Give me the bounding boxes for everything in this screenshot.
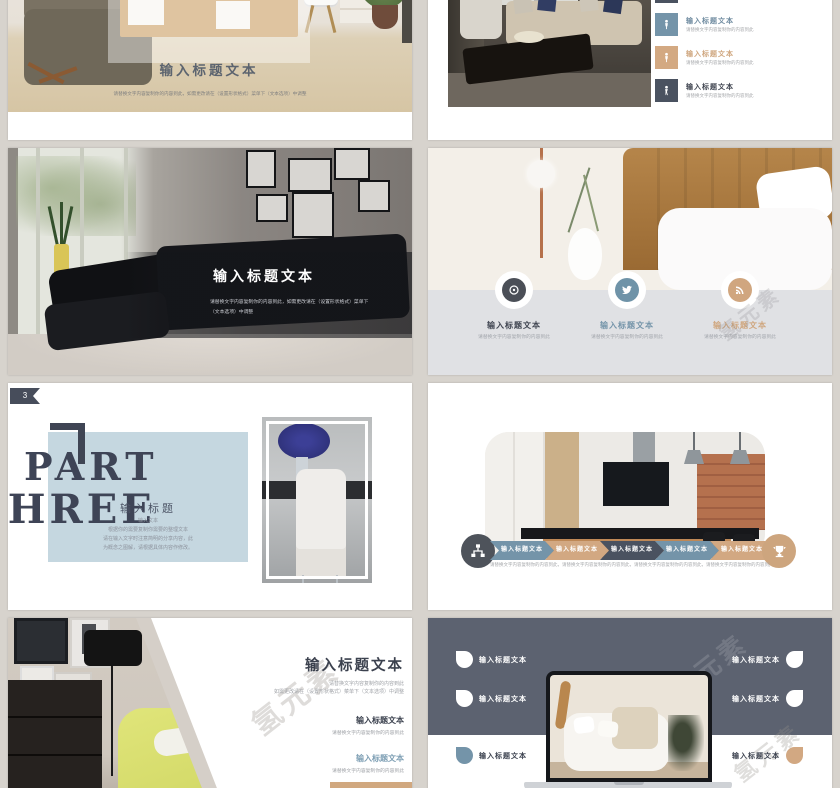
living-room-photo: 输入标题文本 请替换文字内容复制你的内容到此，如需更改请在（设置形状格式）菜单下… — [8, 0, 412, 112]
teardrop-marker-icon — [456, 690, 473, 707]
slide-thumbnail-2-right[interactable]: 输入标题文本 输入标题文本 输入标题文本 请替换文字内容复制你的内容到此 请替换… — [428, 148, 832, 375]
photo-pendant-stem — [693, 432, 695, 450]
photo-wood-panel — [545, 432, 579, 540]
teardrop-marker-icon — [786, 747, 803, 764]
photo-wall-frame — [358, 180, 390, 212]
photo-wall-frame — [256, 194, 288, 222]
item-label: 输入标题文本 — [732, 655, 780, 665]
template-preview-page: 输入标题文本 请替换文字内容复制你的内容到此，如需更改请在（设置形状格式）菜单下… — [0, 0, 840, 788]
part-description: 输入文本 根据你的需要复制你需要的整理文本 请在输入文字时注意简明的分享内容，此… — [43, 517, 253, 553]
item-body: 请替换文字内容复制你的内容到此 — [686, 93, 828, 99]
item-title: 输入标题文本 — [567, 320, 687, 331]
icon-ring — [721, 271, 759, 309]
slide-thumbnail-4-left[interactable]: 氢元素 输入标题文本 请替换文字内容复制你的内容到此 如需更改请在（设置形状格式… — [8, 618, 412, 788]
item-label: 输入标题文本 — [479, 655, 527, 665]
photo-pillow — [513, 0, 533, 14]
photo-wall-frame — [292, 192, 334, 238]
slide-thumbnail-3-left[interactable]: 3 PART THREE 输入标题 输入文本 根据你的需要复制你需要的整理文本 … — [8, 383, 412, 610]
slide-thumbnail-1-left[interactable]: 输入标题文本 请替换文字内容复制你的内容到此，如需更改请在（设置形状格式）菜单下… — [8, 0, 412, 140]
photo-branch — [568, 167, 591, 232]
photo-pendant-lamp — [684, 450, 704, 464]
slide-thumbnail-1-right[interactable]: 输入标题文本 请替换文字内容复制你的内容到此 输入标题文本 请替换文字内容复制你… — [428, 0, 832, 140]
list-item: 输入标题文本 — [456, 651, 527, 668]
target-icon — [502, 278, 526, 302]
item-body: 请替换文字内容复制你的内容到此 — [567, 333, 687, 340]
item-label: 输入标题文本 — [732, 751, 780, 761]
photo-brick-wall — [697, 454, 765, 530]
part-subtitle: 输入标题 — [78, 500, 218, 516]
photo-dresser — [8, 680, 102, 788]
teardrop-marker-icon — [786, 651, 803, 668]
list-item: 输入标题文本 — [456, 747, 527, 764]
slide-body-line: 请替换文字内容复制你的内容到此，如需更改请在（设置形状格式）菜单下 — [210, 298, 408, 305]
person-icon — [655, 46, 678, 69]
process-step: 输入标题文本 — [545, 541, 609, 560]
photo-vase — [568, 228, 602, 280]
slide-body-line: （文本选项）中调整 — [210, 308, 408, 315]
icon-ring — [608, 271, 646, 309]
process-caption: 请替换文字内容复制你的内容到此，请替换文字内容复制你的内容到此，请替换文字内容复… — [490, 562, 770, 568]
dark-overlay-band — [126, 252, 412, 338]
photo-pillow — [597, 720, 619, 738]
photo-lamp-shade — [84, 630, 142, 666]
item-body: 请替换文字内容复制你的内容到此 — [686, 27, 828, 33]
photo-range-hood — [633, 432, 655, 464]
twitter-bird-icon — [615, 278, 639, 302]
photo-pillow — [573, 716, 595, 735]
lounge-photo — [448, 0, 651, 107]
photo-armchair — [460, 0, 502, 39]
teardrop-marker-icon — [786, 690, 803, 707]
part-description-line: 根据你的需要复制你需要的整理文本 — [43, 526, 253, 535]
photo-pillow — [537, 0, 557, 12]
photo-window-mullion — [36, 148, 40, 338]
person-icon — [655, 0, 678, 3]
slide-title: 输入标题文本 — [204, 654, 404, 675]
dining-room-photo — [262, 417, 372, 583]
photo-garden-view — [16, 156, 136, 236]
part-word: PART — [24, 445, 158, 489]
kitchen-photo — [485, 432, 765, 558]
photo-wall-frame — [288, 158, 332, 192]
item-title: 输入标题文本 — [686, 82, 828, 92]
item-body: 请替换文字内容复制你的内容到此 — [454, 333, 574, 340]
section-title: 输入标题文本 — [204, 753, 404, 764]
photo-blanket — [612, 707, 658, 749]
laptop-photo-sofa — [550, 675, 708, 778]
slide-caption: 请替换文字内容复制你的内容到此 如需更改请在（设置形状格式）菜单下（文本选项）中… — [154, 680, 404, 696]
photo-flowers — [514, 31, 544, 43]
slide-thumbnail-2-left[interactable]: 输入标题文本 请替换文字内容复制你的内容到此，如需更改请在（设置形状格式）菜单下… — [8, 148, 412, 375]
photo-chair-leg — [327, 5, 337, 33]
photo-dark-panel — [402, 0, 412, 43]
section-body: 请替换文字内容复制你的内容到此 — [204, 729, 404, 736]
photo-tv — [603, 462, 669, 506]
part-description-line: 输入文本 — [43, 517, 253, 526]
slide-thumbnail-3-right[interactable]: 输入标题文本 输入标题文本 输入标题文本 输入标题文本 输入标题文本 请替换文字… — [428, 383, 832, 610]
photo-pendant-lamp — [730, 450, 750, 464]
process-step: 输入标题文本 — [655, 541, 719, 560]
rss-icon — [728, 278, 752, 302]
item-title: 输入标题文本 — [686, 49, 828, 59]
slide-caption-line: 如需更改请在（设置形状格式）菜单下（文本选项）中调整 — [154, 688, 404, 696]
slide-caption-line: 请替换文字内容复制你的内容到此 — [154, 680, 404, 688]
icon-ring — [495, 271, 533, 309]
item-title: 输入标题文本 — [680, 320, 800, 331]
laptop-notch — [614, 782, 644, 785]
photo-wall-frame — [246, 150, 276, 188]
person-icon — [655, 13, 678, 36]
part-number-flag: 3 — [10, 388, 40, 404]
photo-pendant-stem — [739, 432, 741, 450]
photo-wall-frame — [334, 148, 370, 180]
item-body: 请替换文字内容复制你的内容到此 — [680, 333, 800, 340]
process-step: 输入标题文本 — [600, 541, 664, 560]
list-item: 输入标题文本 — [732, 651, 803, 668]
photo-lamp-pole — [111, 666, 113, 776]
photo-plant-pot — [372, 5, 398, 29]
laptop-screen — [546, 671, 712, 782]
photo-inner-frame — [266, 421, 368, 579]
teardrop-marker-icon — [456, 747, 473, 764]
item-title: 输入标题文本 — [454, 320, 574, 331]
bedroom-photo — [428, 148, 832, 290]
section-body: 请替换文字内容复制你的内容到此 — [204, 767, 404, 774]
part-description-line: 为概念之图解，请根据具体内容作修改。 — [43, 544, 253, 553]
person-icon — [655, 79, 678, 102]
photo-branch — [583, 175, 599, 232]
slide-thumbnail-4-right[interactable]: 氢元素 氢元素 输入标题文本 输入标题文本 输入标题文本 — [428, 618, 832, 788]
translucent-overlay — [108, 0, 310, 63]
item-label: 输入标题文本 — [479, 751, 527, 761]
slide-caption: 请替换文字内容复制你的内容到此，如需更改请在（设置形状格式）菜单下（文本选项）中… — [60, 91, 360, 97]
photo-wall-art — [14, 618, 68, 664]
photo-lamp-bulb — [527, 160, 555, 188]
item-label: 输入标题文本 — [732, 694, 780, 704]
item-label: 输入标题文本 — [479, 694, 527, 704]
slide-title: 输入标题文本 — [108, 59, 310, 79]
section-title: 输入标题文本 — [204, 715, 404, 726]
list-item: 输入标题文本 — [732, 690, 803, 707]
photo-pillow — [579, 0, 599, 12]
part-description-line: 请在输入文字时注意简明的分享内容，此 — [43, 535, 253, 544]
teardrop-marker-icon — [456, 651, 473, 668]
process-step: 输入标题文本 — [490, 541, 554, 560]
list-item: 输入标题文本 — [456, 690, 527, 707]
list-item: 输入标题文本 — [732, 747, 803, 764]
photo-plant — [668, 715, 704, 771]
item-title: 输入标题文本 — [686, 16, 828, 26]
photo-pillow — [603, 0, 623, 14]
slide-title: 输入标题文本 — [213, 266, 403, 286]
item-body: 请替换文字内容复制你的内容到此 — [686, 60, 828, 66]
tan-accent-block — [330, 782, 412, 788]
